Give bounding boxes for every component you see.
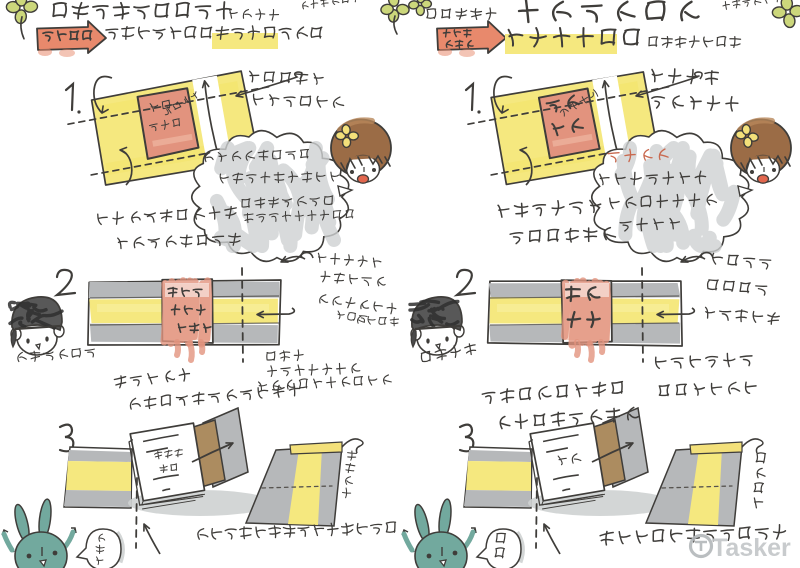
svg-text:Tasker: Tasker: [712, 534, 791, 562]
